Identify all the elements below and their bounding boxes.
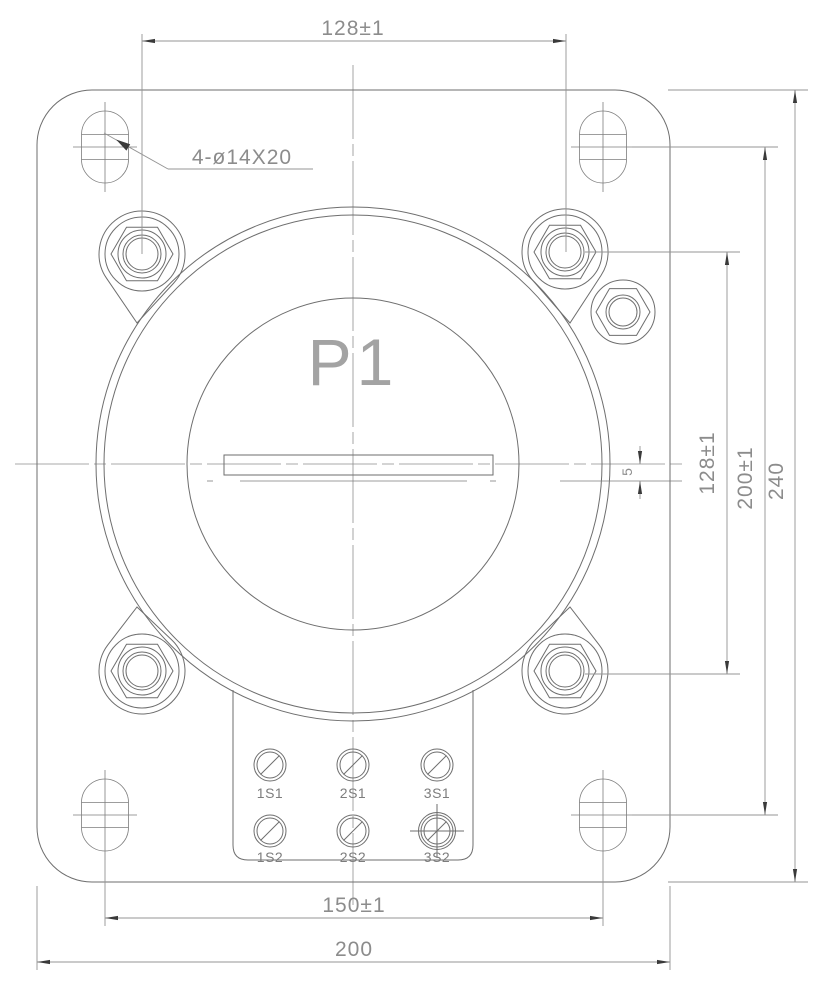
- hex-bolt-bottom-left: [105, 634, 179, 708]
- dimension-text: 128±1: [321, 17, 384, 40]
- terminal-label-1s2: 1S2: [257, 849, 283, 865]
- polarity-marking: P1: [308, 325, 399, 399]
- mounting-slot-bottom-left: [73, 770, 137, 860]
- technical-drawing: P1 1S1 2S1 3S1 1S2 2S2 3S2: [0, 0, 830, 1001]
- terminal-label-2s1: 2S1: [340, 785, 366, 801]
- dimension-text: 150±1: [322, 894, 385, 917]
- dimension-text: 5: [619, 468, 635, 476]
- dimension-text: 200±1: [734, 446, 757, 509]
- dimension-bar-gap: 5: [619, 446, 640, 499]
- ear-top-right: [522, 209, 608, 323]
- dimension-text: 128±1: [696, 431, 719, 494]
- mounting-slot-top-right: [571, 102, 635, 192]
- dimension-top-width: 128±1: [142, 17, 566, 254]
- body-outline: [37, 90, 670, 882]
- terminal-screws: [254, 749, 464, 858]
- terminal-label-3s2: 3S2: [424, 849, 450, 865]
- leader-line: [104, 133, 168, 169]
- drawing-sheet: P1 1S1 2S1 3S1 1S2 2S2 3S2: [0, 0, 830, 1001]
- terminal-labels: 1S1 2S1 3S1 1S2 2S2 3S2: [257, 785, 450, 865]
- slot-callout: 4-ø14X20: [104, 133, 313, 169]
- extra-hex-nut: [591, 280, 655, 344]
- dimension-right-bolt-spacing: 128±1: [585, 252, 740, 674]
- hex-bolt-bottom-right: [528, 634, 602, 708]
- terminal-screw-1s2: [254, 815, 286, 847]
- dimension-text: 200: [335, 938, 373, 961]
- slot-callout-text: 4-ø14X20: [192, 146, 292, 169]
- dimension-text: 240: [765, 462, 788, 500]
- primary-bar: [207, 455, 682, 481]
- terminal-screw-1s1: [254, 749, 286, 781]
- terminal-label-2s2: 2S2: [340, 849, 366, 865]
- leader-arrow-icon: [116, 140, 130, 151]
- terminal-label-1s1: 1S1: [257, 785, 283, 801]
- primary-bar-outline: [224, 455, 493, 475]
- mounting-slot-bottom-right: [571, 770, 635, 860]
- terminal-label-3s1: 3S1: [424, 785, 450, 801]
- terminal-screw-3s1: [421, 749, 453, 781]
